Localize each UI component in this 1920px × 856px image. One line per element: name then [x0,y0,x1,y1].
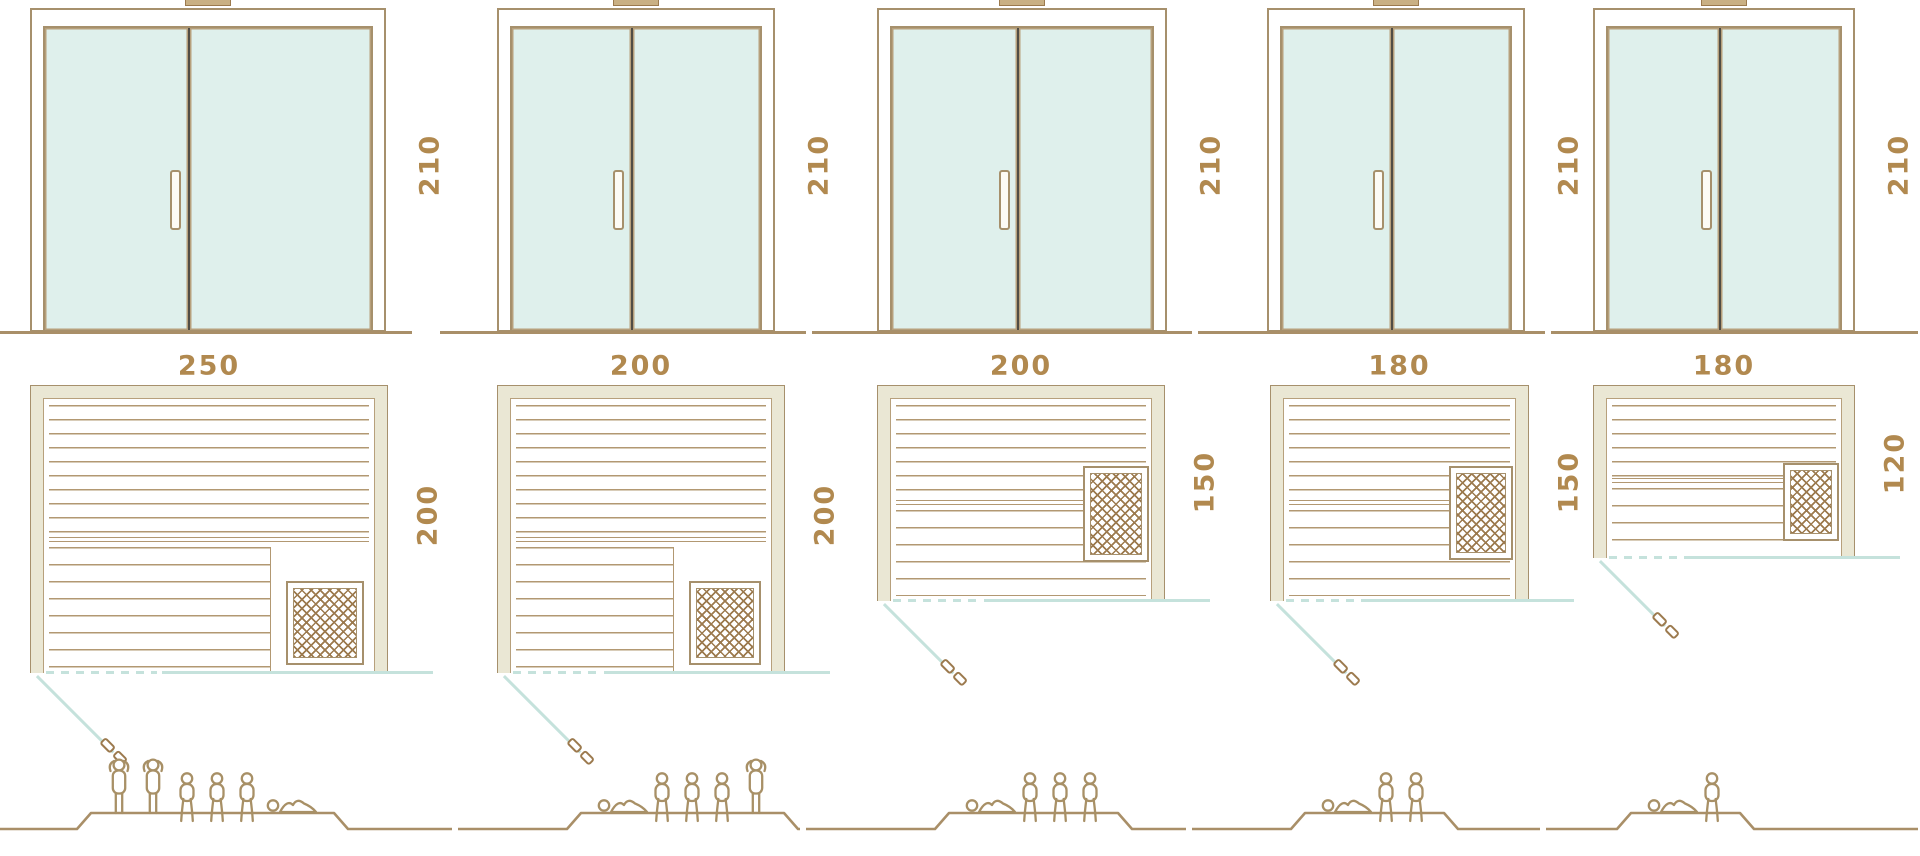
heater [689,581,761,665]
floor-plan [497,385,785,673]
plan-interior [890,398,1152,601]
ground-line [0,331,412,334]
ground-line [440,331,806,334]
person-lying-icon [1649,800,1697,812]
heater-grid-icon [696,588,754,658]
height-label: 210 [1196,134,1227,196]
door-frame [510,26,762,330]
glass-pane-left [1282,28,1393,330]
height-label: 210 [804,134,835,196]
capacity-icons [1192,755,1540,847]
capacity-icons [1546,755,1918,847]
floor-plan [877,385,1165,601]
door-opening-dashed-line [1286,599,1366,602]
glass-pane-left [892,28,1019,330]
door-elevation [30,8,386,332]
roof-vent-icon [999,0,1045,6]
height-label: 210 [1884,134,1915,196]
width-label: 180 [1368,351,1430,382]
heater-grid-icon [1090,473,1142,555]
door-elevation [497,8,775,332]
door-opening-dashed-line [1609,556,1690,559]
person-standing-icon [747,760,765,813]
ground-line [812,331,1192,334]
height-label: 210 [1554,134,1585,196]
ground-bump-line [1192,813,1540,829]
bench-slats-back [49,405,369,537]
plan-interior [1606,398,1842,558]
heater-grid-icon [1790,470,1832,534]
glass-pane-right [1019,28,1152,330]
plan-door-handle-icon [1332,657,1362,687]
glass-front-line [604,671,830,674]
heater [1449,466,1513,560]
height-label: 210 [415,134,446,196]
door-elevation [1593,8,1855,332]
door-frame [890,26,1154,330]
width-label: 250 [178,351,240,382]
depth-label: 150 [1190,451,1221,513]
plan-door-handle-icon [1651,610,1681,640]
width-label: 180 [1693,351,1755,382]
door-handle [1373,170,1384,230]
person-lying-icon [268,800,316,812]
door-handle [613,170,624,230]
heater-grid-icon [293,588,357,658]
bench-edge-line [49,537,369,542]
person-standing-icon [144,760,162,813]
person-standing-icon [110,760,128,813]
heater-grid-icon [1456,473,1506,553]
capacity-icons [458,755,800,847]
roof-vent-icon [185,0,231,6]
glass-pane-right [1393,28,1510,330]
door-frame [43,26,373,330]
glass-pane-left [1608,28,1721,330]
door-handle [999,170,1010,230]
glass-pane-right [190,28,371,330]
person-lying-icon [1323,800,1371,812]
bench-slats-back [516,405,766,537]
depth-label: 200 [413,483,444,545]
ground-bump-line [458,813,800,829]
door-opening-dashed-line [46,671,157,674]
depth-label: 150 [1554,451,1585,513]
glass-pane-right [1721,28,1840,330]
depth-label: 120 [1880,432,1911,494]
ground-line [1198,331,1545,334]
glass-front-line [1366,599,1574,602]
depth-label: 200 [810,483,841,545]
door-frame [1606,26,1842,330]
bench-edge-line [516,537,766,542]
glass-pane-left [45,28,190,330]
door-opening-dashed-line [893,599,982,602]
floor-plan [1593,385,1855,558]
glass-pane-right [633,28,760,330]
plan-interior [43,398,375,673]
door-elevation [877,8,1167,332]
width-label: 200 [610,351,672,382]
ground-line [1551,331,1918,334]
width-label: 200 [990,351,1052,382]
roof-vent-icon [1701,0,1747,6]
person-lying-icon [599,800,647,812]
heater [1083,466,1149,562]
door-opening-dashed-line [513,671,602,674]
plan-door-handle-icon [939,657,969,687]
door-handle [170,170,181,230]
plan-interior [510,398,772,673]
sauna-size-diagram: 210250200 210200200 [0,0,1920,856]
ground-bump-line [0,813,452,829]
capacity-icons [0,755,452,847]
floor-plan [1270,385,1529,601]
glass-front-line [1690,556,1900,559]
roof-vent-icon [1373,0,1419,6]
capacity-icons [806,755,1186,847]
door-frame [1280,26,1512,330]
door-handle [1701,170,1712,230]
glass-front-line [984,599,1210,602]
glass-pane-left [512,28,633,330]
plan-interior [1283,398,1516,601]
roof-vent-icon [613,0,659,6]
person-lying-icon [967,800,1015,812]
door-elevation [1267,8,1525,332]
ground-bump-line [806,813,1186,829]
ground-bump-line [1546,813,1918,829]
heater [286,581,364,665]
floor-plan [30,385,388,673]
heater [1783,463,1839,541]
glass-front-line [162,671,433,674]
